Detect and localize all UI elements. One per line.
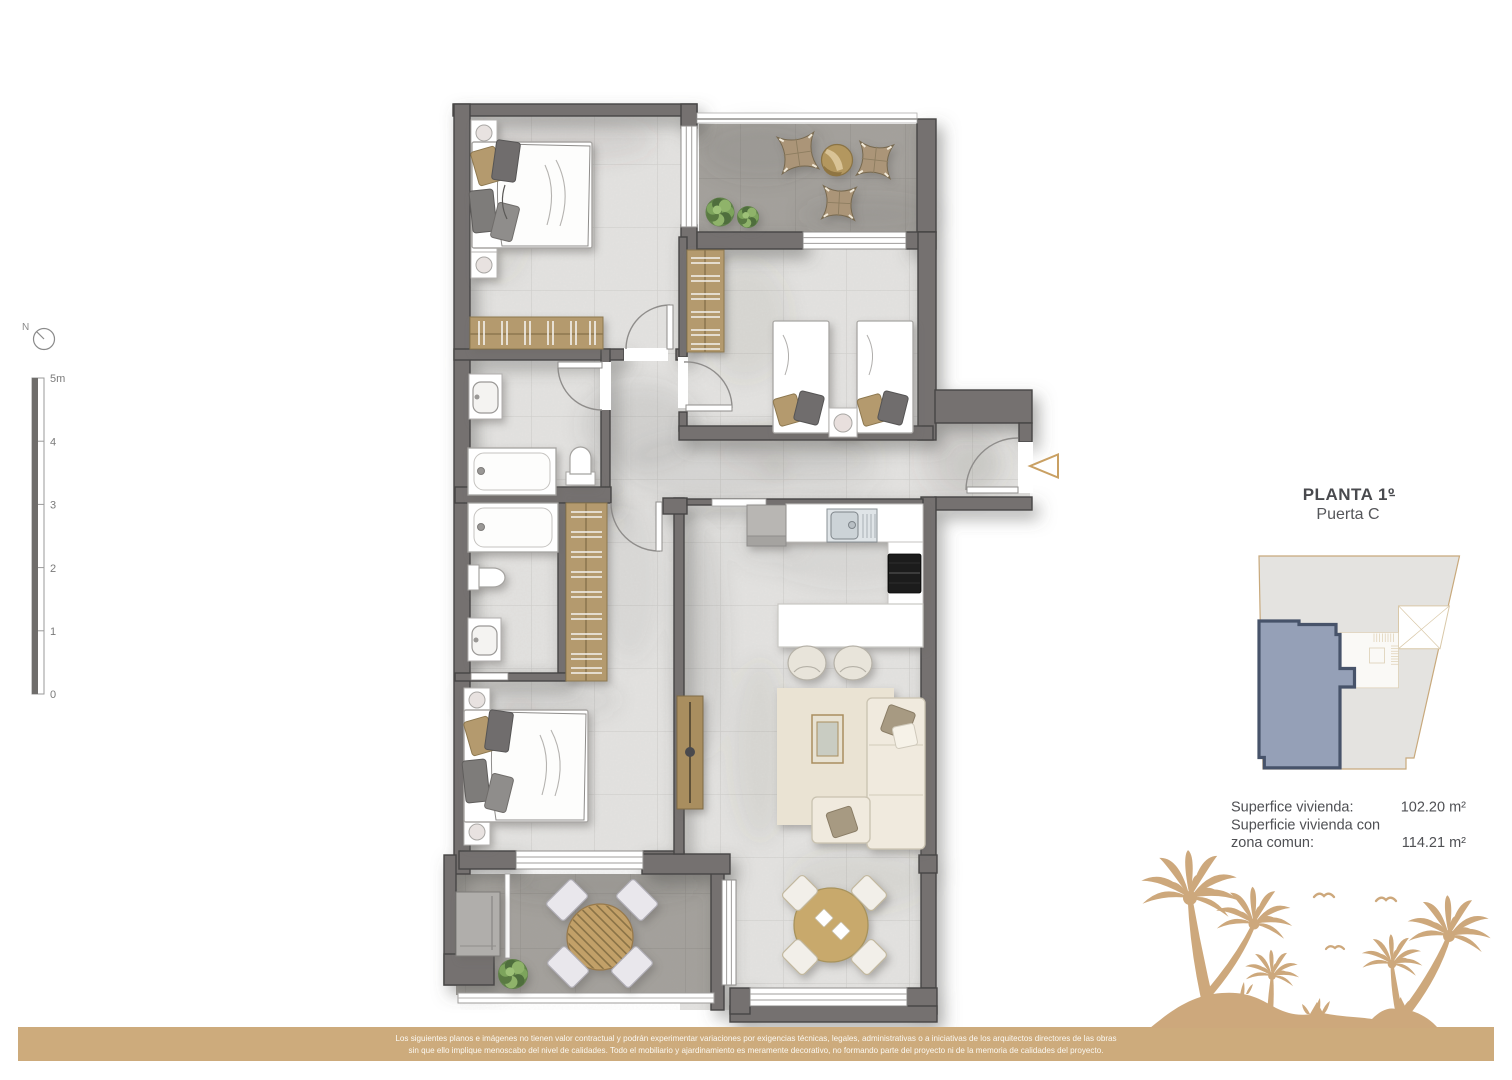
svg-text:zona comun:: zona comun:: [1231, 835, 1314, 851]
svg-text:Los siguientes planos e imágen: Los siguientes planos e imágenes no tien…: [395, 1034, 1116, 1043]
svg-text:102.20 m²: 102.20 m²: [1401, 800, 1466, 816]
svg-text:3: 3: [50, 500, 56, 512]
svg-text:Superficie vivienda con: Superficie vivienda con: [1231, 818, 1380, 834]
svg-text:N: N: [22, 322, 29, 333]
svg-text:sin que ello implique menoscab: sin que ello implique menoscabo del nive…: [409, 1046, 1104, 1055]
svg-text:Superfice vivienda:: Superfice vivienda:: [1231, 800, 1354, 816]
svg-text:0: 0: [50, 689, 56, 701]
svg-text:1: 1: [50, 626, 56, 638]
svg-text:PLANTA 1º: PLANTA 1º: [1303, 485, 1395, 504]
svg-text:114.21 m²: 114.21 m²: [1402, 835, 1466, 851]
svg-text:2: 2: [50, 563, 56, 575]
svg-text:4: 4: [50, 437, 56, 449]
svg-text:Puerta C: Puerta C: [1316, 506, 1379, 523]
svg-text:5m: 5m: [50, 373, 65, 385]
